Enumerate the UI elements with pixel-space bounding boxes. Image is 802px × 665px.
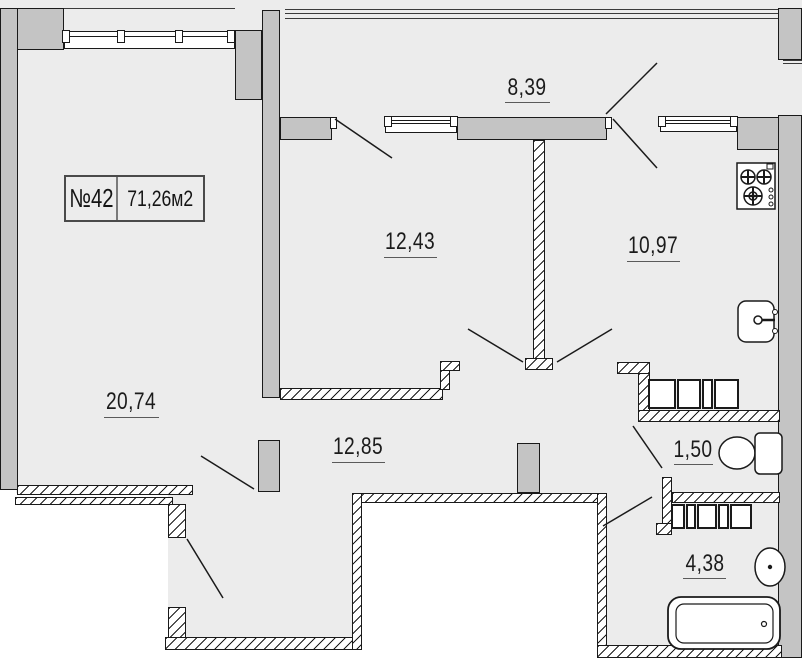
bathtub-icon	[668, 597, 780, 649]
stove-icon	[737, 163, 775, 209]
room-area-label-balcony: 8,39	[508, 74, 547, 102]
bathroom-cabinet-units	[672, 505, 751, 528]
room-area-label-kitchen: 10,97	[628, 232, 678, 260]
kitchen-sink-icon	[738, 301, 778, 342]
room-area-underline	[683, 578, 726, 579]
plan-symbols-layer	[0, 0, 802, 665]
door-leaf-living-room	[201, 456, 254, 489]
door-leaf-entrance	[187, 539, 223, 598]
room-area-underline	[627, 261, 680, 262]
washbasin-icon	[755, 548, 785, 586]
toilet-icon	[719, 433, 782, 474]
door-leaf-balcony-kitchen-out	[606, 63, 657, 114]
room-area-label-wc: 1,50	[674, 436, 713, 464]
apartment-number: №42	[69, 183, 113, 214]
room-area-label-living-room: 20,74	[106, 388, 156, 416]
room-area-label-bathroom: 4,38	[686, 550, 725, 578]
room-area-label-room: 12,43	[385, 228, 435, 256]
door-leaf-room	[468, 329, 523, 362]
apartment-total-area: 71,26м2	[128, 186, 194, 212]
room-area-label-hallway: 12,85	[333, 433, 383, 461]
door-leaf-balcony-kitchen	[613, 119, 657, 168]
room-area-underline	[505, 102, 550, 103]
room-area-underline	[674, 464, 713, 465]
kitchen-counter-units	[649, 380, 738, 408]
door-leaf-kitchen	[557, 329, 612, 362]
door-leaf-wc	[633, 426, 662, 468]
door-leaf-balcony-room	[335, 119, 392, 158]
room-area-underline	[104, 417, 159, 418]
door-leaf-bathroom	[603, 497, 652, 526]
apartment-area-cell: 71,26м2	[118, 177, 203, 220]
room-area-underline	[384, 257, 437, 258]
room-area-underline	[332, 462, 385, 463]
apartment-number-cell: №42	[66, 177, 118, 220]
apartment-title-box: №42 71,26м2	[64, 175, 205, 222]
floor-plan: №42 71,26м2 8,39 12,43 10,97 20,74 12,85…	[0, 0, 802, 665]
